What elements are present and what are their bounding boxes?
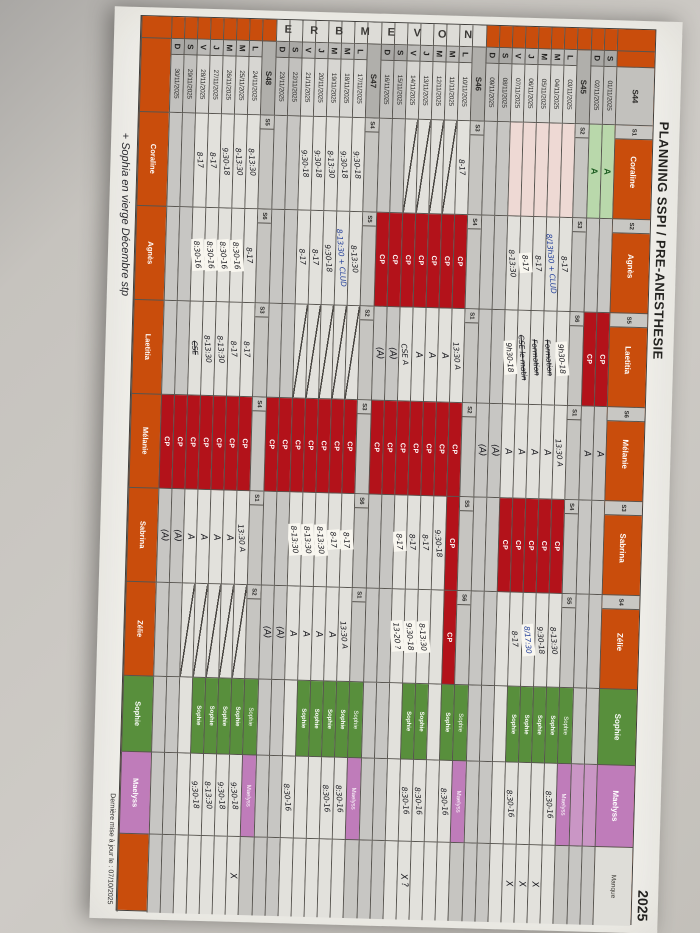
month-cell <box>472 25 487 47</box>
schedule-cell <box>164 207 180 301</box>
staff-header-cell: S6Mélanie <box>604 407 645 502</box>
month-cell <box>367 22 382 44</box>
schedule-cell <box>153 583 169 677</box>
sophie-shift-label: Sophie <box>300 708 307 728</box>
sophie-shift-label: Sophie <box>405 711 412 731</box>
schedule-cell: 8-17 <box>530 217 546 311</box>
schedule-cell <box>254 755 269 837</box>
cell-value: 8:30-16 <box>413 786 424 814</box>
month-cell <box>184 17 198 39</box>
schedule-cell <box>305 305 321 399</box>
shift-code-cell: S4 <box>565 500 578 514</box>
schedule-cell: CP <box>444 497 460 591</box>
schedule-cell: 8-13:30 <box>347 212 363 306</box>
cp-label: CP <box>417 255 424 266</box>
schedule-cell <box>160 835 175 913</box>
month-cell <box>302 20 316 42</box>
schedule-cell <box>331 305 347 399</box>
cp-label: CP <box>443 256 450 267</box>
cp-label: CP <box>320 440 327 451</box>
shift-code-cell: S3 <box>255 303 268 317</box>
month-cell <box>512 26 526 48</box>
schedule-cell: 8-17 <box>392 495 408 589</box>
cp-label: CP <box>241 438 248 449</box>
staff-name: Laetitia <box>143 334 153 361</box>
schedule-cell: 8-13:30 <box>201 754 216 836</box>
schedule-cell: A <box>538 405 554 499</box>
date-cell: 03/11/2025 <box>562 66 577 124</box>
week-shift-cell: Maelyss <box>240 755 256 837</box>
schedule-cell <box>466 685 481 761</box>
schedule-cell <box>481 592 497 686</box>
cell-value: 8-13:30 <box>203 334 214 362</box>
schedule-cell: CP <box>394 401 410 495</box>
month-cell <box>223 18 237 40</box>
schedule-cell <box>566 846 581 924</box>
week-label-cell: S46 <box>470 47 486 121</box>
day-letter-cell: M <box>222 40 235 56</box>
month-header-cell <box>617 29 656 52</box>
schedule-cell <box>573 594 589 688</box>
footer-name-cell: Mélanie <box>128 394 161 489</box>
sophie-shift-label: Sophie <box>339 709 346 729</box>
shift-code-cell: S1 <box>615 125 652 140</box>
cell-value: 8/17:30 <box>523 625 534 653</box>
schedule-cell: X <box>500 844 515 922</box>
schedule-cell <box>166 583 182 677</box>
week-label: S46 <box>474 77 483 91</box>
day-letter-cell: D <box>275 42 288 58</box>
date-cell: 30/11/2025 <box>169 55 184 113</box>
schedule-cell: A <box>436 308 452 402</box>
schedule-cell <box>306 757 321 839</box>
schedule-cell: CP <box>441 591 457 685</box>
cell-value: 9:30-18 <box>221 147 232 175</box>
schedule-cell <box>179 583 195 677</box>
date-cell: 12/11/2025 <box>431 62 446 120</box>
shift-code-cell: S2 <box>463 403 476 417</box>
cp-label: CP <box>586 354 593 365</box>
month-cell <box>341 22 355 44</box>
week-shift-cell: S5 <box>559 594 576 688</box>
day-letter-cell: M <box>327 43 340 59</box>
schedule-cell: A <box>208 490 224 584</box>
schedule-cell <box>218 584 234 678</box>
footer-name-cell: Sabrina <box>126 488 159 583</box>
cell-value: 8:30-16 <box>439 787 450 815</box>
schedule-cell <box>489 310 505 404</box>
schedule-cell: A <box>525 405 541 499</box>
shift-code-cell: S2 <box>575 124 588 138</box>
cp-label: CP <box>456 256 463 267</box>
staff-header-cell: S5Laetitia <box>607 313 648 408</box>
schedule-cell <box>376 119 392 213</box>
month-cell <box>420 24 434 46</box>
schedule-cell <box>516 763 531 845</box>
schedule-cell: X <box>513 845 528 923</box>
month-cell <box>354 22 368 44</box>
staff-name: Sophie <box>352 710 359 729</box>
schedule-cell: A <box>310 587 326 681</box>
schedule-cell <box>282 210 298 304</box>
schedule-cell: CP <box>184 395 200 489</box>
cell-value: 8-17 <box>457 159 467 176</box>
week-shift-cell <box>342 840 358 918</box>
schedule-cell: 8-17 <box>454 121 470 215</box>
staff-name: Laetitia <box>623 346 633 374</box>
day-letter-cell: S <box>393 45 406 61</box>
schedule-cell: 9:30-18 <box>336 118 352 212</box>
shift-code-cell: S5 <box>260 115 273 129</box>
cell-value: 9:30-18 <box>300 149 311 177</box>
cell-value: 8-17 <box>408 534 418 551</box>
cell-value: 8-17 <box>534 255 544 272</box>
schedule-cell <box>408 842 423 920</box>
day-letter-cell: M <box>432 46 445 62</box>
schedule-cell: 8:30-16 <box>398 760 413 842</box>
schedule-cell <box>492 216 508 310</box>
schedule-cell: A <box>423 308 439 402</box>
schedule-cell: 8-17 <box>205 114 221 208</box>
schedule-cell: 8-13:30 <box>505 216 521 310</box>
schedule-cell <box>151 677 166 753</box>
cell-value: 8:30-16 <box>400 786 411 814</box>
schedule-cell: CP <box>433 402 449 496</box>
month-cell <box>459 25 473 47</box>
schedule-cell <box>356 840 371 918</box>
cp-label: CP <box>540 541 547 552</box>
cp-label: CP <box>412 443 419 454</box>
schedule-cell <box>252 837 267 915</box>
schedule-cell: X ? <box>395 841 410 919</box>
schedule-cell: Sophie <box>505 686 520 762</box>
shift-code-cell: S2 <box>613 219 650 234</box>
schedule-cell: X <box>225 837 240 915</box>
week-shift-cell: Maelyss <box>345 758 361 840</box>
day-letter-cell: V <box>511 48 524 64</box>
month-cell <box>171 17 185 39</box>
schedule-cell: 8:30-16 <box>542 764 557 846</box>
schedule-cell <box>428 590 444 684</box>
schedule-cell <box>426 684 441 760</box>
schedule-cell: CP <box>439 214 455 308</box>
day-letter-cell: J <box>209 40 222 56</box>
schedule-cell: CP <box>510 499 526 593</box>
shift-code-cell: S5 <box>562 594 575 608</box>
schedule-cell: CP <box>523 499 539 593</box>
schedule-cell <box>474 844 489 922</box>
cell-value: 8:30-16 <box>205 240 216 268</box>
schedule-cell <box>494 122 510 216</box>
staff-name: Sophie <box>562 716 569 735</box>
schedule-cell <box>282 680 297 756</box>
schedule-cell <box>487 844 502 922</box>
cell-value: 9:30-18 <box>190 780 201 808</box>
schedule-cell: (A) <box>156 489 172 583</box>
cell-value: A <box>185 533 195 540</box>
a-label: A <box>589 168 599 175</box>
schedule-cell: A <box>578 406 594 500</box>
schedule-cell: 9h30-18 <box>554 312 570 406</box>
schedule-cell: 8-17 <box>242 209 258 303</box>
schedule-cell <box>372 759 387 841</box>
month-cell <box>210 18 224 40</box>
schedule-cell: 8-13:30 <box>415 590 431 684</box>
cell-value: A <box>528 448 538 455</box>
day-letter-cell: S <box>603 51 616 67</box>
schedule-cell: 8:30-16 <box>319 757 334 839</box>
cell-value: A <box>502 448 512 455</box>
date-cell: 01/11/2025 <box>602 67 617 125</box>
schedule-cell <box>492 686 507 762</box>
month-cell <box>236 19 250 41</box>
month-cell <box>276 20 290 42</box>
schedule-cell <box>293 757 308 839</box>
schedule-cell: 8-13:30 + CLUD <box>334 212 350 306</box>
cell-value: 8-17 <box>395 533 405 550</box>
schedule-cell: 13-20 ? <box>389 589 405 683</box>
week-shift-cell: Maelyss <box>450 761 466 843</box>
schedule-cell <box>507 122 523 216</box>
schedule-cell <box>471 497 487 591</box>
staff-name: Mélanie <box>620 439 630 469</box>
day-letter-cell: J <box>314 43 327 59</box>
shift-code-cell: S1 <box>250 491 263 505</box>
week-shift-cell: S6 <box>454 591 471 685</box>
cell-value: A <box>581 450 591 457</box>
cell-value: (A) <box>489 444 500 457</box>
week-shift-cell: S3 <box>252 303 269 397</box>
schedule-cell: 8-13:30 <box>244 115 260 209</box>
schedule-cell: CP <box>341 400 357 494</box>
date-cell: 21/11/2025 <box>300 58 315 116</box>
cell-value: A <box>313 630 323 637</box>
schedule-cell: CP <box>263 398 279 492</box>
schedule-cell: A <box>323 587 339 681</box>
schedule-cell: CP <box>223 397 239 491</box>
date-cell: 05/11/2025 <box>536 65 551 123</box>
schedule-cell <box>546 123 562 217</box>
schedule-cell: Sophie <box>308 681 323 757</box>
cell-value: 9:30-18 <box>339 150 350 178</box>
schedule-cell <box>359 758 374 840</box>
date-cell: 27/11/2025 <box>208 56 223 114</box>
schedule-cell <box>520 123 536 217</box>
shift-code-cell: S5 <box>610 313 647 328</box>
cell-value: CSE <box>190 341 200 356</box>
sophie-shift-label: Sophie <box>313 709 320 729</box>
schedule-cell <box>379 495 395 589</box>
cell-value: A <box>413 351 423 358</box>
schedule-cell: 8-17 <box>405 496 421 590</box>
day-letter-cell: D <box>380 45 393 61</box>
cell-value: (A) <box>476 443 487 456</box>
photo-scene: PLANNING SSPI / PRE-ANESTHESIE 2025 S44S… <box>0 0 700 933</box>
cell-value: (A) <box>172 529 183 542</box>
schedule-cell <box>428 120 444 214</box>
week-shift-cell: Sophie <box>242 679 258 755</box>
day-letter-cell: D <box>590 51 603 67</box>
cell-value: 9:30-18 <box>536 626 547 654</box>
cell-value: 9:30-18 <box>229 781 240 809</box>
cell-value: 8:30-16 <box>544 790 555 818</box>
schedule-cell: 9h30-18 <box>502 310 518 404</box>
cell-value: A <box>326 631 336 638</box>
shift-code-cell: S6 <box>355 494 368 508</box>
schedule-cell: A <box>586 125 602 219</box>
cell-value: 8-17 <box>208 152 218 169</box>
cell-value: 13:30 A <box>554 438 565 466</box>
schedule-cell: 13:30 A <box>234 491 250 585</box>
week-shift-cell: Sophie <box>347 682 363 758</box>
cell-value: 8-13:30 <box>247 147 258 175</box>
schedule-cell: 9:30-18 <box>533 593 549 687</box>
schedule-cell <box>279 304 295 398</box>
date-cell: 28/11/2025 <box>195 56 210 114</box>
schedule-cell: 8:30-16 <box>503 762 518 844</box>
week-shift-cell <box>238 837 254 915</box>
schedule-cell: 8-13:30 <box>213 302 229 396</box>
schedule-cell <box>266 304 282 398</box>
schedule-cell: CP <box>497 498 513 592</box>
week-label-cell: S48 <box>260 41 276 115</box>
page-title: PLANNING SSPI / PRE-ANESTHESIE <box>651 121 673 359</box>
shift-code-cell: S4 <box>602 595 639 610</box>
schedule-cell: A <box>410 308 426 402</box>
cell-value: 13:30 A <box>237 523 248 551</box>
schedule-cell: CP <box>549 500 565 594</box>
day-letter-cell: L <box>353 44 366 60</box>
day-letter-cell: S <box>288 42 301 58</box>
date-cell: 20/11/2025 <box>313 59 328 117</box>
schedule-cell <box>389 119 405 213</box>
cell-value: (A) <box>387 347 398 360</box>
cp-label: CP <box>527 540 534 551</box>
cell-value: 8:30-16 <box>321 784 332 812</box>
schedule-cell: 9:30-18 <box>218 114 234 208</box>
shift-code-cell: S4 <box>468 215 481 229</box>
schedule-cell: 8-17 <box>295 210 311 304</box>
schedule-cell: Formation <box>541 311 557 405</box>
staff-name: Maelyss <box>560 793 567 815</box>
month-cell <box>249 19 263 41</box>
cell-value: 9h30-18 <box>505 342 516 373</box>
schedule-cell: 8-13:30 <box>287 492 303 586</box>
schedule-cell: 9:30-18 <box>321 211 337 305</box>
month-cell <box>525 27 539 49</box>
schedule-cell <box>569 764 584 846</box>
date-cell: 25/11/2025 <box>234 57 249 115</box>
cell-value: 8-13:30 <box>234 147 245 175</box>
staff-name: Coraline <box>148 144 158 174</box>
cell-value: 13:30 A <box>339 620 350 648</box>
cp-label: CP <box>176 436 183 447</box>
schedule-cell: CP <box>581 312 597 406</box>
date-cell: 14/11/2025 <box>405 61 420 119</box>
cp-label: CP <box>307 440 314 451</box>
footer-name-cell <box>117 834 149 913</box>
staff-name: Manque <box>609 875 617 899</box>
day-letter-cell: M <box>550 49 563 65</box>
week-shift-cell: S4 <box>465 215 482 309</box>
staff-name: Maelyss <box>245 785 252 807</box>
schedule-cell <box>559 124 575 218</box>
shift-code-cell: S3 <box>605 501 642 516</box>
cp-label: CP <box>399 443 406 454</box>
week-label-cell: S45 <box>575 50 591 124</box>
cp-label: CP <box>294 440 301 451</box>
cell-value: 8:30-16 <box>282 783 293 811</box>
schedule-cell <box>586 595 602 689</box>
schedule-cell <box>231 585 247 679</box>
week-label: S44 <box>630 89 639 103</box>
cell-value: X <box>227 873 237 880</box>
schedule-cell <box>490 762 505 844</box>
cp-label: CP <box>373 442 380 453</box>
schedule-cell: Sophie <box>334 682 349 758</box>
schedule-cell: 9:30-18 <box>310 117 326 211</box>
cell-value: 8-17 <box>242 341 252 358</box>
cell-value: 9:30-18 <box>405 622 416 650</box>
staff-name: Zélie <box>135 620 144 637</box>
schedule-cell <box>179 113 195 207</box>
staff-name: Sabrina <box>138 521 148 549</box>
schedule-cell: Sophie <box>531 687 546 763</box>
staff-name: Sabrina <box>618 533 628 563</box>
schedule-cell <box>468 591 484 685</box>
schedule-cell <box>161 301 177 395</box>
day-letter-cell: M <box>235 41 248 57</box>
week-shift-cell: S3 <box>467 121 484 215</box>
staff-header-cell: S4Zélie <box>599 595 640 690</box>
shift-code-cell: S6 <box>570 312 583 326</box>
shift-code-cell: S6 <box>258 209 271 223</box>
schedule-cell <box>269 680 284 756</box>
schedule-cell <box>533 123 549 217</box>
schedule-cell <box>477 762 492 844</box>
day-letter-cell: V <box>301 42 314 58</box>
week-shift-cell: S1 <box>247 491 264 585</box>
date-cell: 24/11/2025 <box>247 57 262 115</box>
schedule-cell: 9:30-18 <box>349 118 365 212</box>
schedule-cell: CP <box>594 313 610 407</box>
cp-label: CP <box>228 438 235 449</box>
cell-value: 8-13:30 <box>326 150 337 178</box>
staff-name: Maelyss <box>130 778 140 807</box>
schedule-cell: 8:30-16 <box>280 756 295 838</box>
staff-name: Zélie <box>615 633 625 651</box>
cp-label: CP <box>448 538 455 549</box>
day-letter-cell: L <box>458 47 471 63</box>
month-cell <box>289 20 303 42</box>
week-shift-cell: S3 <box>354 400 371 494</box>
schedule-cell: 9:30-18 <box>188 754 203 836</box>
handwritten-margin-note: + Sophia en vierge Décembre stp <box>119 133 131 297</box>
week-shift-cell: Maelyss <box>555 764 571 846</box>
schedule-cell <box>481 122 497 216</box>
staff-header-cell: S2Agnès <box>609 219 650 314</box>
shift-code-cell: S1 <box>465 309 478 323</box>
month-cell <box>394 23 408 45</box>
schedule-cell <box>344 306 360 400</box>
schedule-cell <box>402 119 418 213</box>
date-cell: 26/11/2025 <box>221 56 236 114</box>
schedule-cell: CP <box>381 401 397 495</box>
year-label: 2025 <box>635 890 652 922</box>
cell-value: X ? <box>398 874 409 888</box>
month-cell <box>315 21 329 43</box>
week-shift-cell: S4 <box>249 397 266 491</box>
